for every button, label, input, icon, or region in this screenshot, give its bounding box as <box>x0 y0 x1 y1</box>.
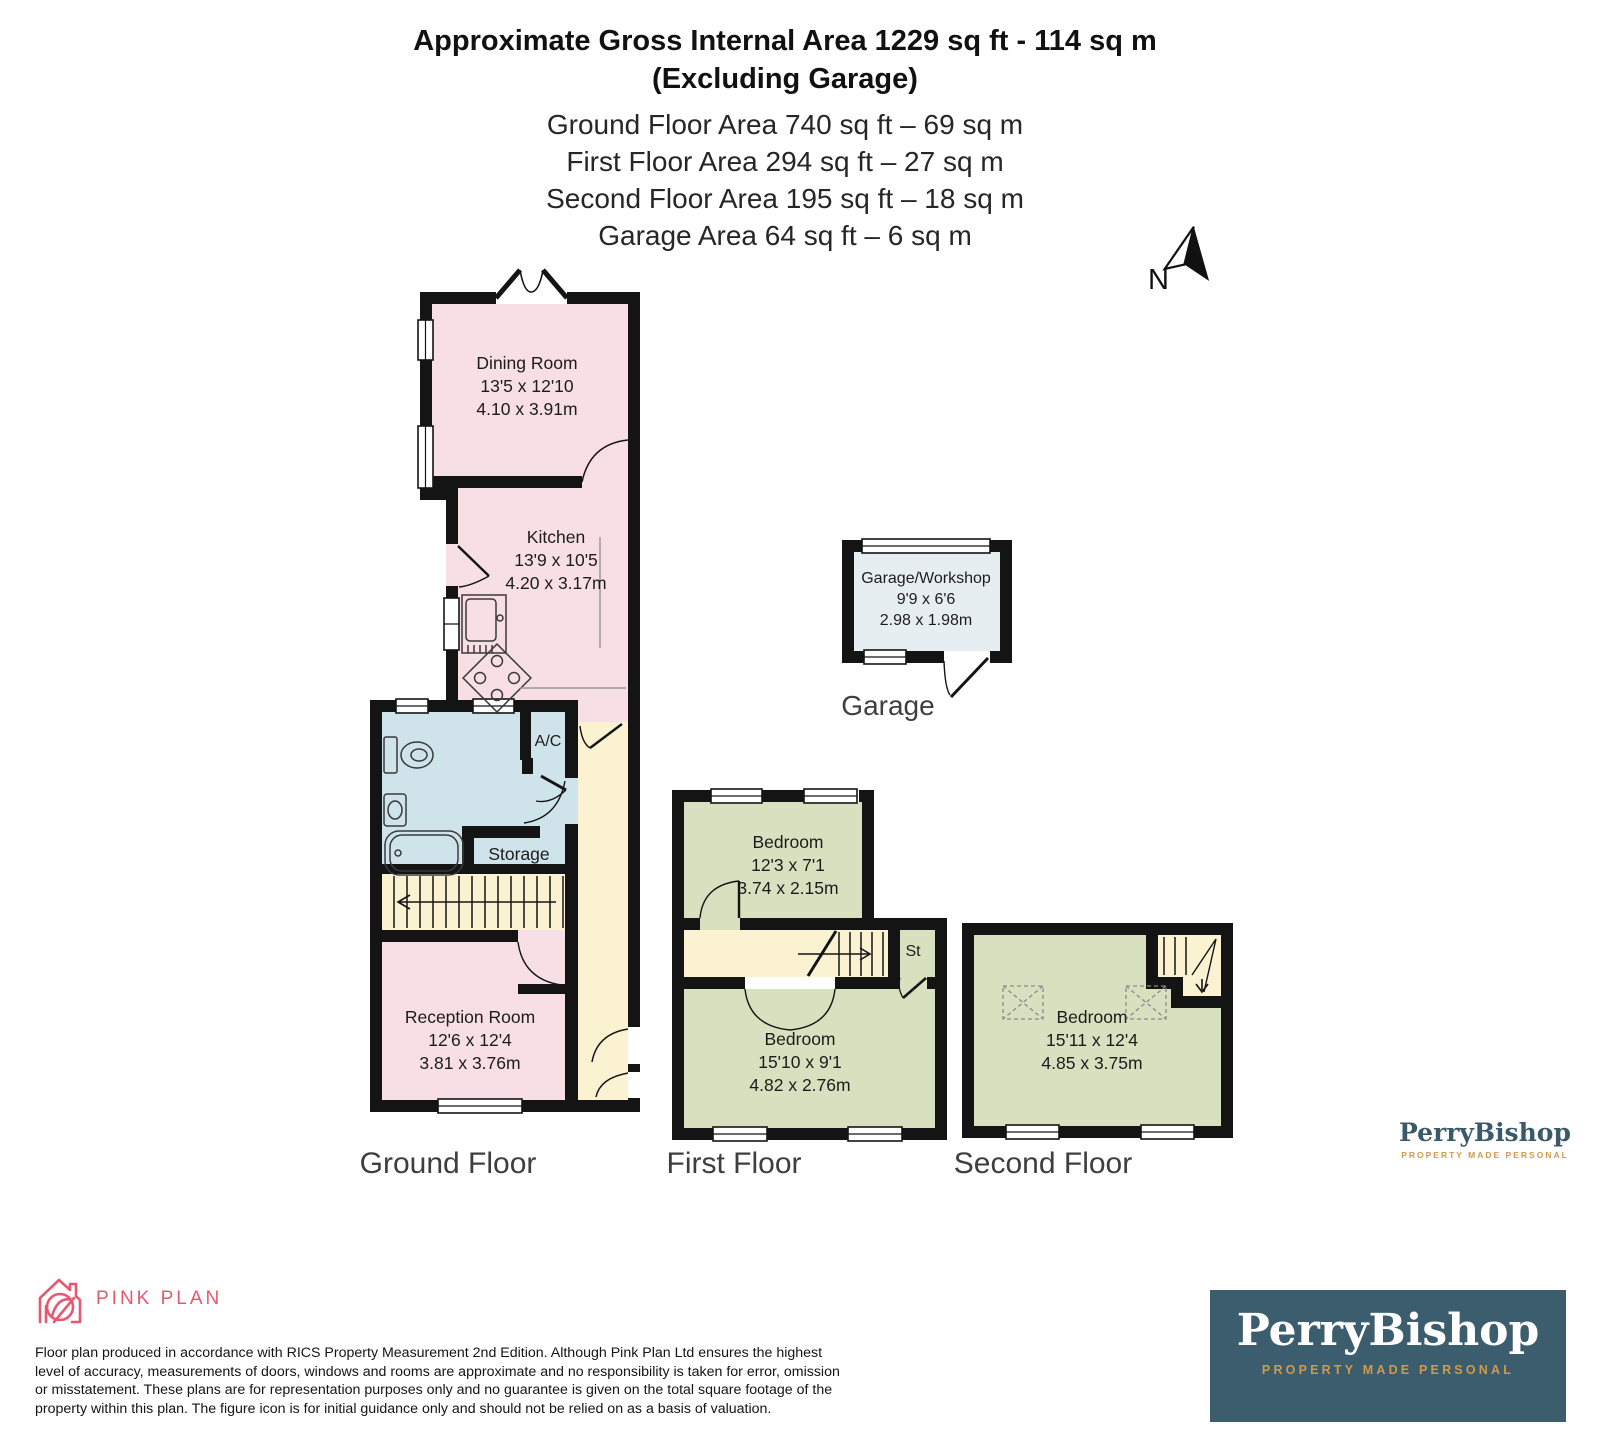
room-label-bedroom-2: Bedroom 15'10 x 9'1 4.82 x 2.76m <box>749 1028 850 1097</box>
floor-label-first: First Floor <box>667 1147 802 1181</box>
room-label-garage-workshop: Garage/Workshop 9'9 x 6'6 2.98 x 1.98m <box>861 568 991 631</box>
room-label-bedroom-3: Bedroom 15'11 x 12'4 4.85 x 3.75m <box>1041 1006 1142 1075</box>
room-size-metric: 4.20 x 3.17m <box>505 572 606 595</box>
perrybishop-logo-small: PerryBishop PROPERTY MADE PERSONAL <box>1390 1118 1580 1160</box>
room-size-imperial: 9'9 x 6'6 <box>861 589 991 610</box>
room-size-metric: 3.81 x 3.76m <box>405 1052 535 1075</box>
floor-label-ground: Ground Floor <box>360 1147 537 1181</box>
room-size-metric: 4.82 x 2.76m <box>749 1074 850 1097</box>
room-name: Reception Room <box>405 1006 535 1029</box>
disclaimer-line-2: level of accuracy, measurements of doors… <box>35 1363 840 1382</box>
room-name: Storage <box>488 843 549 866</box>
floor-label-garage: Garage <box>841 690 934 722</box>
room-name: Bedroom <box>1041 1006 1142 1029</box>
disclaimer-line-1: Floor plan produced in accordance with R… <box>35 1344 840 1363</box>
north-label: N <box>1148 264 1169 297</box>
room-size-metric: 2.98 x 1.98m <box>861 610 991 631</box>
perrybishop-wordmark-small: PerryBishop <box>1390 1118 1580 1147</box>
room-size-imperial: 13'9 x 10'5 <box>505 549 606 572</box>
north-arrow-icon <box>1164 222 1220 281</box>
room-name: Bedroom <box>749 1028 850 1051</box>
room-size-imperial: 13'5 x 12'10 <box>476 375 577 398</box>
disclaimer-line-4: property within this plan. The figure ic… <box>35 1400 840 1419</box>
pinkplan-house-icon <box>34 1272 84 1326</box>
room-name: Kitchen <box>505 526 606 549</box>
room-label-st: St <box>905 941 920 962</box>
floor-label-second: Second Floor <box>954 1147 1132 1181</box>
room-label-kitchen: Kitchen 13'9 x 10'5 4.20 x 3.17m <box>505 526 606 595</box>
room-name: Bedroom <box>737 831 838 854</box>
room-label-reception-room: Reception Room 12'6 x 12'4 3.81 x 3.76m <box>405 1006 535 1075</box>
room-name: A/C <box>535 731 562 752</box>
perrybishop-logo-badge: PerryBishop PROPERTY MADE PERSONAL <box>1210 1290 1566 1422</box>
floorplan-drawing <box>0 0 1600 1451</box>
perrybishop-wordmark: PerryBishop <box>1210 1307 1566 1355</box>
perrybishop-tagline-small: PROPERTY MADE PERSONAL <box>1390 1150 1580 1160</box>
room-size-imperial: 12'3 x 7'1 <box>737 854 838 877</box>
room-size-imperial: 15'10 x 9'1 <box>749 1051 850 1074</box>
room-size-imperial: 15'11 x 12'4 <box>1041 1029 1142 1052</box>
room-label-dining-room: Dining Room 13'5 x 12'10 4.10 x 3.91m <box>476 352 577 421</box>
room-label-storage: Storage <box>488 843 549 866</box>
floorplan-page: Approximate Gross Internal Area 1229 sq … <box>0 0 1600 1451</box>
room-label-bedroom-1: Bedroom 12'3 x 7'1 3.74 x 2.15m <box>737 831 838 900</box>
room-name: Dining Room <box>476 352 577 375</box>
room-size-metric: 4.85 x 3.75m <box>1041 1052 1142 1075</box>
disclaimer-text: Floor plan produced in accordance with R… <box>35 1344 840 1418</box>
pinkplan-wordmark: PINK PLAN <box>96 1288 222 1310</box>
room-name: Garage/Workshop <box>861 568 991 589</box>
room-size-metric: 3.74 x 2.15m <box>737 877 838 900</box>
disclaimer-line-3: or misstatement. These plans are for rep… <box>35 1381 840 1400</box>
room-name: St <box>905 941 920 962</box>
room-size-metric: 4.10 x 3.91m <box>476 398 577 421</box>
room-size-imperial: 12'6 x 12'4 <box>405 1029 535 1052</box>
perrybishop-tagline: PROPERTY MADE PERSONAL <box>1210 1363 1566 1377</box>
room-label-ac: A/C <box>535 731 562 752</box>
